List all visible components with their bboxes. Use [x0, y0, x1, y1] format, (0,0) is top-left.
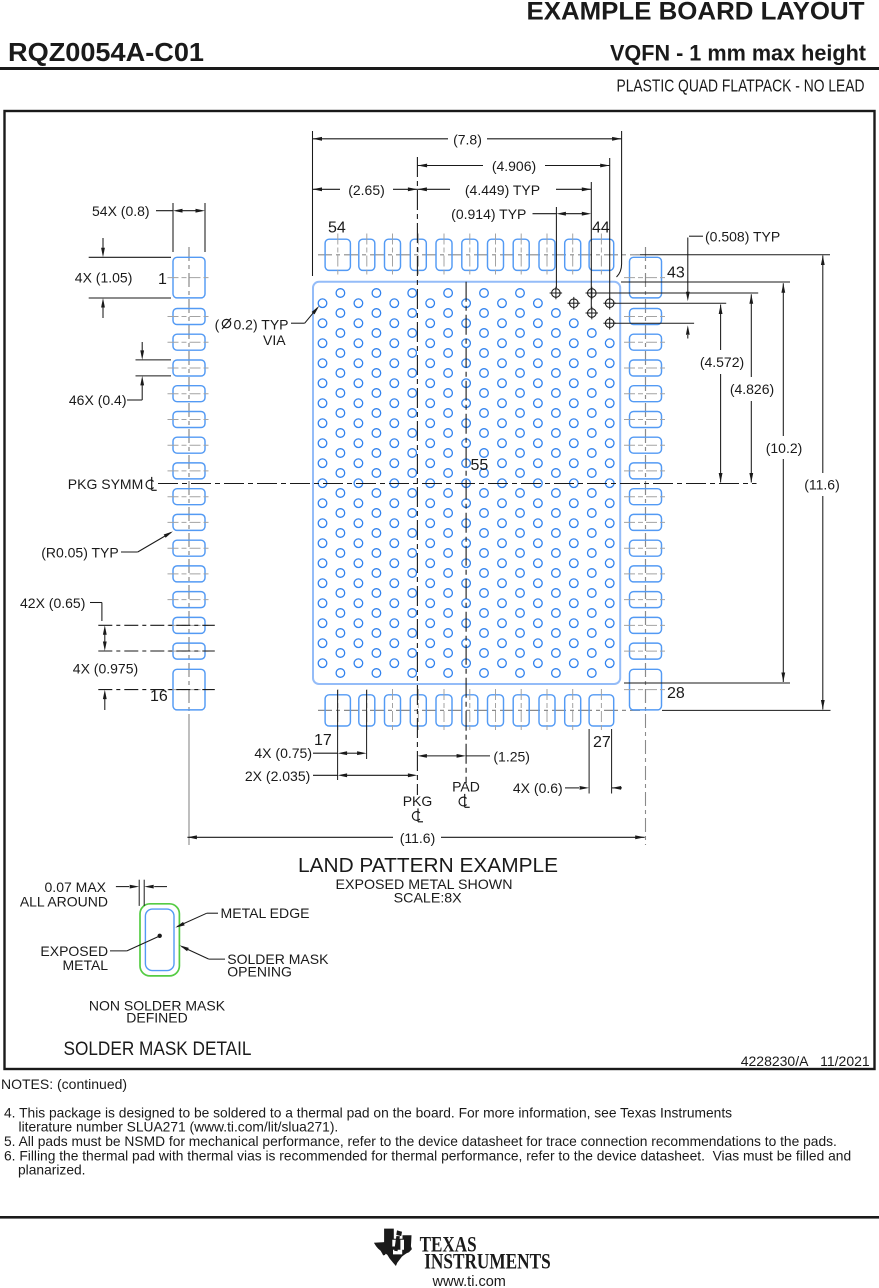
svg-text:27: 27 [593, 734, 611, 751]
svg-text:(10.2): (10.2) [766, 440, 803, 456]
svg-text:SOLDER MASK DETAIL: SOLDER MASK DETAIL [64, 1038, 252, 1060]
svg-text:(R0.05) TYP: (R0.05) TYP [41, 544, 119, 560]
svg-text:0.2) TYP: 0.2) TYP [234, 316, 289, 332]
svg-text:(11.6): (11.6) [400, 830, 436, 846]
svg-text:RQZ0054A-C01: RQZ0054A-C01 [8, 37, 204, 67]
svg-text:55: 55 [471, 457, 489, 474]
svg-text:ALL AROUND: ALL AROUND [20, 893, 108, 909]
svg-text:SCALE:8X: SCALE:8X [394, 890, 463, 906]
svg-text:METAL EDGE: METAL EDGE [221, 905, 310, 921]
svg-text:5. All pads must be NSMD for m: 5. All pads must be NSMD for mechanical … [4, 1134, 837, 1149]
svg-text:42X (0.65): 42X (0.65) [20, 595, 85, 611]
svg-text:(11.6): (11.6) [804, 477, 840, 493]
svg-text:planarized.: planarized. [18, 1163, 86, 1178]
svg-text:16: 16 [150, 688, 168, 705]
svg-text:4X (1.05): 4X (1.05) [75, 270, 133, 286]
svg-text:4X (0.75): 4X (0.75) [254, 745, 312, 761]
svg-text:28: 28 [667, 685, 685, 702]
svg-text:PKG: PKG [403, 793, 433, 809]
svg-text:VIA: VIA [263, 332, 286, 348]
svg-text:43: 43 [667, 265, 685, 282]
svg-text:4228230/A 11/2021: 4228230/A 11/2021 [741, 1053, 870, 1069]
svg-text:6. Filling the thermal pad wit: 6. Filling the thermal pad with thermal … [4, 1149, 851, 1164]
svg-text:LAND PATTERN EXAMPLE: LAND PATTERN EXAMPLE [298, 855, 558, 877]
svg-text:www.ti.com: www.ti.com [432, 1274, 506, 1288]
svg-text:4X (0.6): 4X (0.6) [513, 780, 563, 796]
svg-text:DEFINED: DEFINED [126, 1010, 187, 1026]
svg-text:44: 44 [592, 220, 610, 237]
svg-text:(0.914) TYP: (0.914) TYP [451, 206, 526, 222]
svg-text:OPENING: OPENING [227, 963, 292, 979]
svg-text:4. This package is designed to: 4. This package is designed to be solder… [4, 1106, 732, 1121]
svg-text:NOTES: (continued): NOTES: (continued) [1, 1076, 127, 1092]
svg-text:54X (0.8): 54X (0.8) [92, 203, 150, 219]
svg-text:(2.65): (2.65) [348, 182, 385, 198]
svg-text:(: ( [215, 316, 220, 332]
svg-text:literature number SLUA271 (www: literature number SLUA271 (www.ti.com/li… [19, 1120, 339, 1135]
svg-text:PAD: PAD [452, 779, 480, 795]
svg-text:(4.826): (4.826) [730, 381, 774, 397]
svg-text:(7.8): (7.8) [453, 131, 482, 147]
svg-text:2X (2.035): 2X (2.035) [245, 768, 310, 784]
svg-text:(0.508) TYP: (0.508) TYP [705, 229, 780, 245]
svg-text:PLASTIC QUAD FLATPACK - NO LEA: PLASTIC QUAD FLATPACK - NO LEAD [617, 76, 865, 96]
svg-text:VQFN - 1 mm max height: VQFN - 1 mm max height [610, 41, 867, 66]
svg-text:EXAMPLE BOARD LAYOUT: EXAMPLE BOARD LAYOUT [527, 0, 865, 26]
svg-text:METAL: METAL [62, 957, 108, 973]
svg-text:(4.449) TYP: (4.449) TYP [465, 182, 540, 198]
svg-text:(4.572): (4.572) [700, 354, 744, 370]
svg-text:PKG SYMM: PKG SYMM [68, 476, 143, 492]
svg-text:INSTRUMENTS: INSTRUMENTS [424, 1249, 551, 1274]
svg-text:(4.906): (4.906) [492, 158, 536, 174]
svg-text:46X (0.4): 46X (0.4) [69, 392, 127, 408]
svg-text:1: 1 [158, 271, 167, 288]
svg-text:(1.25): (1.25) [493, 748, 530, 764]
svg-text:54: 54 [328, 220, 346, 237]
svg-text:17: 17 [314, 732, 332, 749]
svg-text:4X (0.975): 4X (0.975) [73, 661, 138, 677]
